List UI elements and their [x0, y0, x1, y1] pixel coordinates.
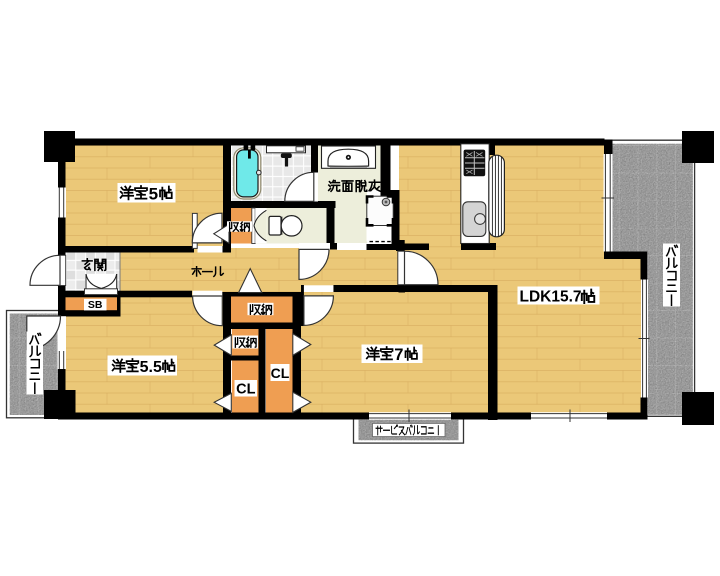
svg-text:SB: SB: [88, 299, 103, 311]
svg-text:5.5: 5.5: [140, 359, 162, 376]
svg-text:CL: CL: [236, 382, 255, 398]
svg-text:CL: CL: [271, 365, 290, 381]
svg-text:5: 5: [149, 185, 158, 204]
svg-text:LDK15.7: LDK15.7: [520, 289, 582, 306]
svg-text:7: 7: [394, 346, 403, 364]
